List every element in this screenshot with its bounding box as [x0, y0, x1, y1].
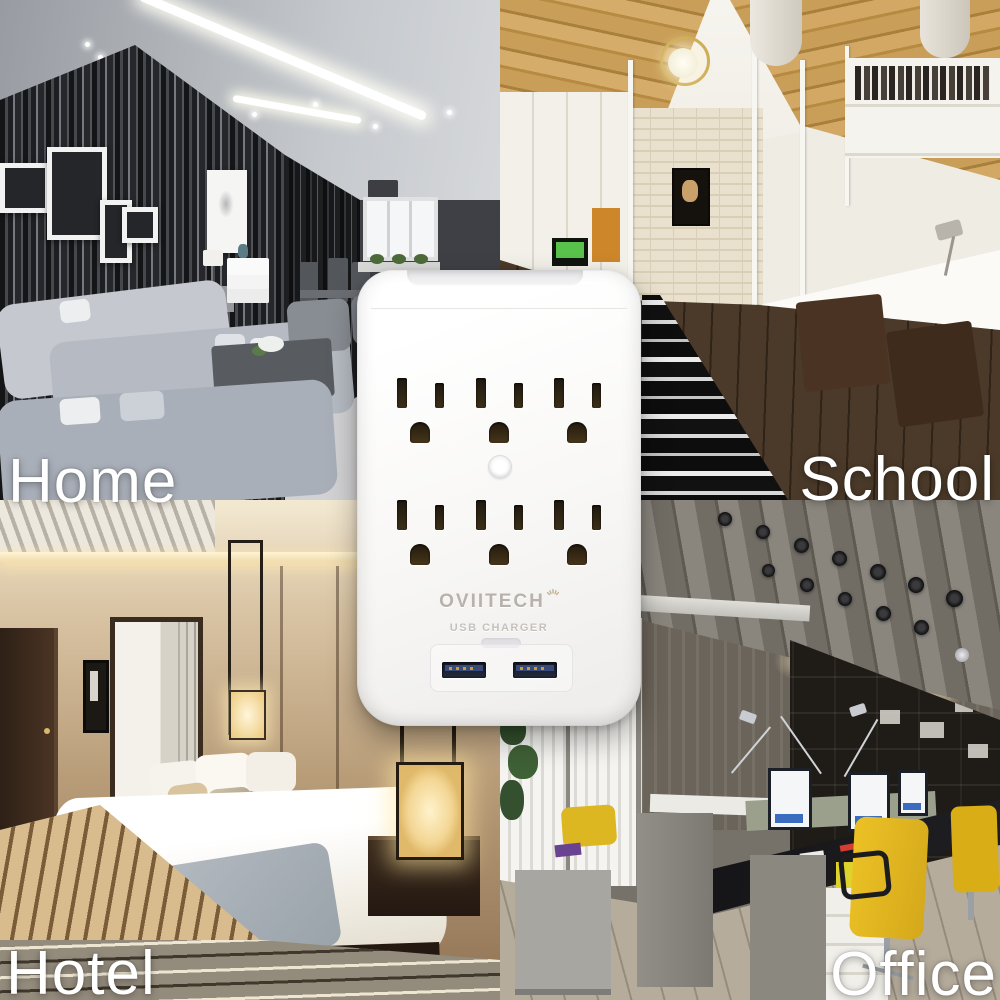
product-collage: Home School Hotel Office: [0, 0, 1000, 1000]
bed-pillow: [246, 752, 296, 792]
table-flowers: [258, 336, 284, 352]
product-wall-outlet-usb-charger: OVIITECH USB CHARGER: [357, 270, 641, 726]
home-cove-light: [232, 95, 361, 124]
quadrant-label-office: Office: [830, 944, 997, 1000]
ac-outlet: [539, 500, 615, 566]
ac-outlet: [539, 378, 615, 444]
recessed-light: [252, 112, 257, 117]
track-spotlight: [800, 578, 814, 592]
wall-seam: [336, 566, 339, 806]
floral-canvas: [207, 170, 247, 253]
spark-rays-icon: [547, 588, 559, 606]
bedding-roll: [920, 0, 970, 58]
loft-post: [752, 40, 757, 335]
yellow-chair: [561, 804, 618, 848]
potted-plant: [370, 254, 384, 264]
ac-outlet: [382, 378, 458, 444]
locker-accent: [592, 208, 620, 262]
outlet-hot-slot: [592, 505, 601, 530]
office-plant: [508, 745, 538, 779]
track-spotlight: [832, 551, 847, 566]
outlet-ground-hole: [489, 422, 509, 443]
track-spotlight: [914, 620, 929, 635]
gray-desk-divider: [637, 813, 713, 987]
vase: [238, 244, 248, 258]
usb-tongue: [516, 665, 554, 671]
outlet-hot-slot: [514, 383, 523, 408]
recessed-light: [373, 124, 378, 129]
outlet-neutral-slot: [397, 500, 407, 530]
usb-port: [442, 662, 486, 678]
desk-lamp: [934, 219, 963, 241]
books-row: [855, 66, 990, 100]
quadrant-label-hotel: Hotel: [6, 943, 156, 1000]
picture-frame: [0, 163, 50, 213]
picture-frame: [122, 207, 158, 243]
computer-monitor: [898, 770, 928, 816]
shelf-books: [880, 710, 900, 724]
led-indicator: [488, 455, 512, 479]
quadrant-label-home: Home: [8, 451, 177, 513]
product-face-groove: [371, 308, 627, 309]
hanging-lamp-shade: [229, 690, 266, 740]
usb-charger-label: USB CHARGER: [357, 622, 641, 634]
outlet-ground-hole: [410, 544, 430, 565]
rolling-cabinet: [515, 870, 611, 995]
sofa-pillow: [59, 397, 101, 426]
track-spotlight: [946, 590, 963, 607]
picture-frame: [83, 660, 109, 733]
potted-plant: [414, 254, 428, 264]
desktop-monitor: [552, 238, 588, 266]
quadrant-label-school: School: [799, 449, 995, 511]
shelf-books: [920, 722, 944, 738]
outlet-neutral-slot: [476, 500, 486, 530]
outlet-ground-hole: [567, 422, 587, 443]
gray-desk-divider: [750, 855, 826, 1000]
glowing-cube-lamp: [396, 762, 464, 860]
wooden-bench: [796, 294, 891, 392]
track-spotlight: [908, 577, 924, 593]
bedding-roll: [750, 0, 802, 66]
yellow-office-chair: [951, 805, 1000, 893]
track-spotlight: [794, 538, 809, 553]
track-spotlight: [762, 564, 775, 577]
recessed-light: [313, 102, 318, 107]
track-spotlight: [876, 606, 891, 621]
track-spotlight: [756, 525, 770, 539]
door-knob: [44, 728, 50, 734]
wooden-bench: [886, 320, 985, 427]
potted-plant: [392, 254, 406, 264]
computer-monitor: [768, 768, 812, 830]
usb-tongue: [445, 665, 483, 671]
outlet-neutral-slot: [476, 378, 486, 408]
outlet-neutral-slot: [554, 378, 564, 408]
chair-armrest: [838, 850, 893, 901]
outlet-hot-slot: [514, 505, 523, 530]
ceiling-lamp-globe: [668, 48, 698, 78]
track-spotlight: [870, 564, 886, 580]
outlet-ground-hole: [410, 422, 430, 443]
outlet-ground-hole: [489, 544, 509, 565]
picture-frame: [47, 147, 107, 240]
outlet-hot-slot: [592, 383, 601, 408]
product-top-notch: [407, 270, 583, 286]
window: [363, 197, 438, 261]
sofa-pillow: [119, 390, 165, 421]
wall-portrait: [672, 168, 710, 226]
sofa-pillow: [59, 298, 91, 323]
recessed-light: [447, 110, 452, 115]
outlet-ground-hole: [567, 544, 587, 565]
hanging-lamp-frame: [228, 540, 263, 543]
recessed-light: [85, 42, 90, 47]
shelf-books: [968, 744, 988, 758]
outlet-neutral-slot: [554, 500, 564, 530]
office-plant: [500, 780, 524, 820]
dresser: [227, 258, 269, 303]
outlet-hot-slot: [435, 383, 444, 408]
track-spotlight: [718, 512, 732, 526]
outlet-neutral-slot: [397, 378, 407, 408]
ac-outlet: [382, 500, 458, 566]
mirror-ball: [955, 648, 969, 662]
chair-stem: [968, 892, 974, 920]
outlet-hot-slot: [435, 505, 444, 530]
usb-port: [513, 662, 557, 678]
ac-outlet: [461, 500, 537, 566]
brand-logo: OVIITECH: [439, 591, 545, 612]
track-spotlight: [838, 592, 852, 606]
brand-logo-row: OVIITECH: [357, 588, 641, 613]
table-lamp: [203, 250, 223, 266]
ac-outlet: [461, 378, 537, 444]
pendant-lamp: [368, 180, 398, 198]
